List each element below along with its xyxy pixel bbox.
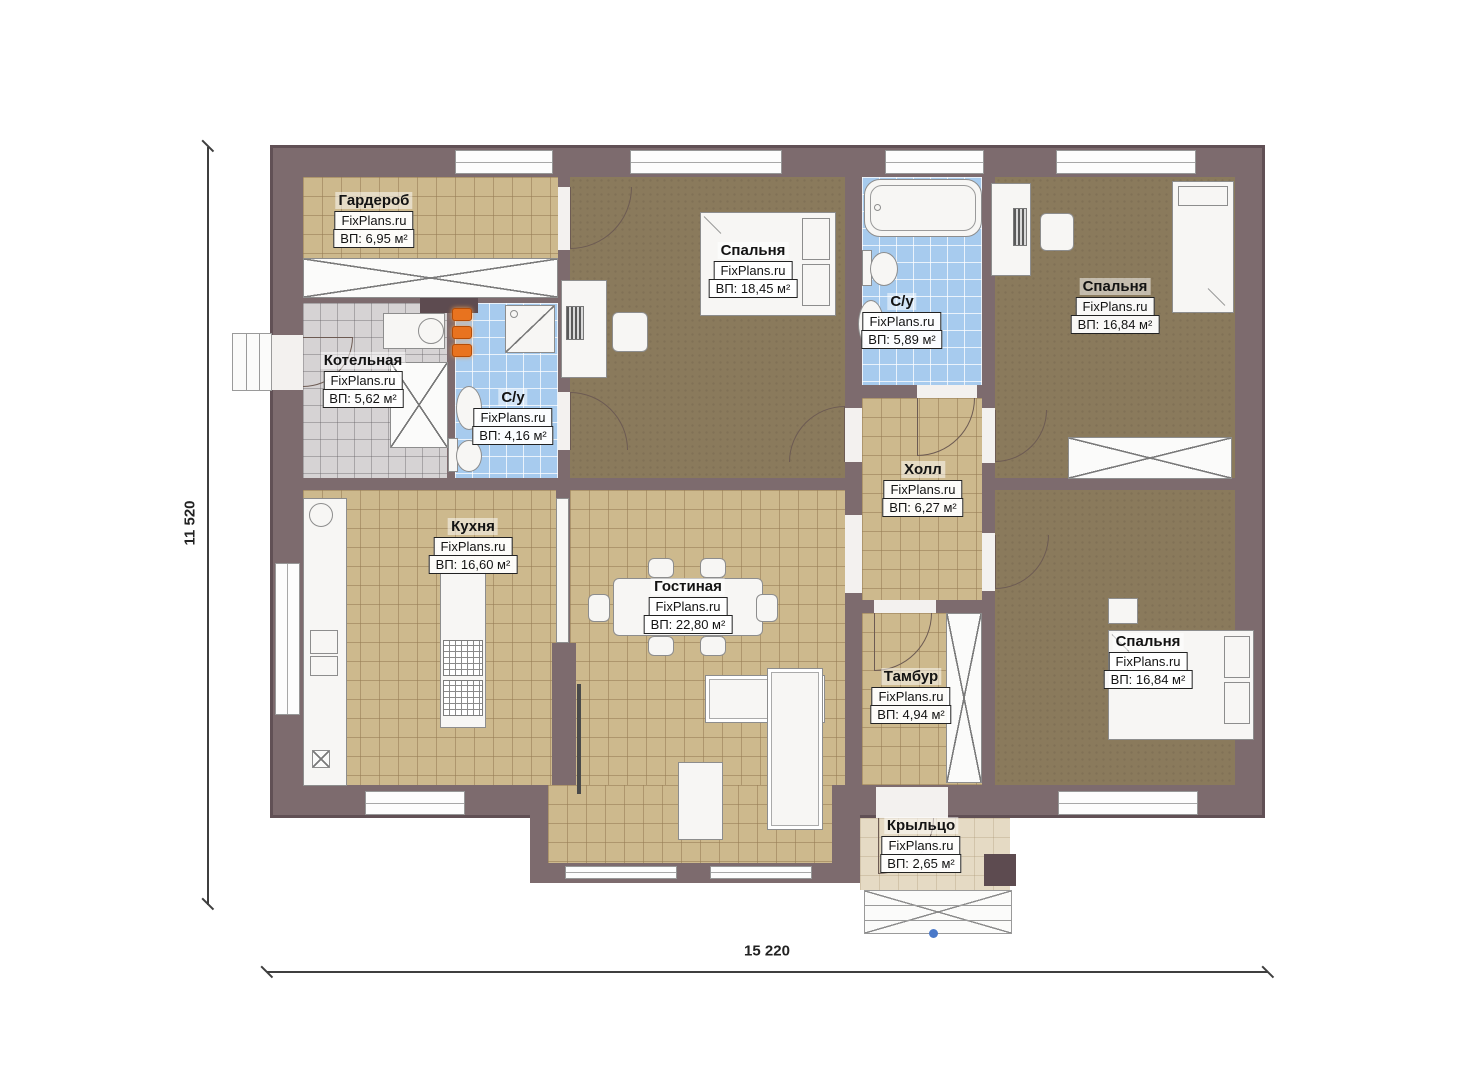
boiler-burner-icon [452,344,472,357]
door-gap-wardrobe [558,187,570,250]
label-brand: FixPlans.ru [862,312,941,331]
room-label-porch: Крыльцо FixPlans.ru ВП: 2,65 м² [880,817,961,873]
room-name: Спальня [718,242,789,259]
fridge-icon [312,750,330,768]
label-brand: FixPlans.ru [433,537,512,556]
boiler-burner-icon [452,308,472,321]
label-brand: FixPlans.ru [473,408,552,427]
door-gap-bedroom-2 [982,408,995,463]
door-gap-bath-main [917,385,977,398]
label-brand: FixPlans.ru [881,836,960,855]
kitchen-sink-icon [310,630,338,654]
room-label-bedroom-2: Спальня FixPlans.ru ВП: 16,84 м² [1071,278,1160,334]
dining-chair-icon [648,558,674,578]
counter-light-icon [309,503,333,527]
boiler-burner-icon [452,326,472,339]
pillow-icon [802,218,830,260]
label-brand: FixPlans.ru [713,261,792,280]
dining-chair-icon [700,558,726,578]
bathtub-inner-icon [870,185,976,231]
room-name: С/у [498,389,527,406]
room-label-bath-small: С/у FixPlans.ru ВП: 4,16 м² [472,389,553,445]
label-brand: FixPlans.ru [883,480,962,499]
toilet-icon [870,252,898,286]
window [1056,150,1196,174]
pillow-icon [1224,636,1250,678]
chair-icon [612,312,648,352]
kitchen-sink-icon [310,656,338,676]
coffee-table-icon [678,762,723,840]
door-gap-vestibule [874,600,936,613]
label-brand: FixPlans.ru [1075,297,1154,316]
room-label-hall: Холл FixPlans.ru ВП: 6,27 м² [882,461,963,517]
window [275,563,300,715]
porch-steps [864,890,1012,934]
label-area: ВП: 2,65 м² [880,854,961,873]
door-gap-bath-small [558,392,570,450]
room-label-bedroom-1: Спальня FixPlans.ru ВП: 18,45 м² [709,242,798,298]
label-area: ВП: 5,62 м² [322,389,403,408]
pillow-icon [802,264,830,306]
label-brand: FixPlans.ru [871,687,950,706]
room-label-wardrobe: Гардероб FixPlans.ru ВП: 6,95 м² [333,192,414,248]
kitchen-living-partition [552,643,576,785]
dimension-line-horizontal [267,971,1268,973]
floor-plan-canvas: Гардероб FixPlans.ru ВП: 6,95 м² Котельн… [0,0,1474,1080]
label-brand: FixPlans.ru [648,597,727,616]
door-gap-bedroom-3 [982,533,995,591]
label-brand: FixPlans.ru [323,371,402,390]
label-area: ВП: 22,80 м² [644,615,733,634]
opening-living-hall [845,515,862,593]
dimension-height-label: 11 520 [182,500,199,545]
dimension-line-vertical [207,147,209,905]
window [565,866,677,879]
label-brand: FixPlans.ru [334,211,413,230]
laptop-icon [566,306,584,340]
room-name: Тамбур [881,668,941,685]
door-gap-bedroom-1 [845,408,862,462]
label-brand: FixPlans.ru [1108,652,1187,671]
porch-column [984,854,1016,886]
window [365,791,465,815]
room-name: Спальня [1113,633,1184,650]
room-label-kitchen: Кухня FixPlans.ru ВП: 16,60 м² [429,518,518,574]
dining-chair-icon [648,636,674,656]
wardrobe-closet-icon [1068,437,1232,479]
door-gap-boiler-entry [272,335,303,390]
monitor-icon [1013,208,1027,246]
room-name: Котельная [321,352,406,369]
label-area: ВП: 6,27 м² [882,498,963,517]
window [630,150,782,174]
window [885,150,984,174]
label-area: ВП: 5,89 м² [861,330,942,349]
room-label-living: Гостиная FixPlans.ru ВП: 22,80 м² [644,578,733,634]
window [1058,791,1198,815]
window [710,866,812,879]
room-name: С/у [887,293,916,310]
shower-head-icon [510,310,518,318]
label-area: ВП: 16,84 м² [1104,670,1193,689]
label-area: ВП: 4,16 м² [472,426,553,445]
room-name: Холл [901,461,945,478]
label-area: ВП: 18,45 м² [709,279,798,298]
entry-steps-side [232,333,272,391]
room-label-bath-main: С/у FixPlans.ru ВП: 5,89 м² [861,293,942,349]
dining-chair-icon [588,594,610,622]
pillow-icon [1178,186,1228,206]
room-name: Крыльцо [884,817,958,834]
porch-marker-dot [929,929,938,938]
bath-faucet-icon [874,204,881,211]
stove-grate-icon [443,680,483,716]
room-label-boiler: Котельная FixPlans.ru ВП: 5,62 м² [321,352,406,408]
tv-icon [577,684,581,794]
washer-drum-icon [418,318,444,344]
room-label-vestibule: Тамбур FixPlans.ru ВП: 4,94 м² [870,668,951,724]
room-name: Спальня [1080,278,1151,295]
room-name: Кухня [448,518,498,535]
tall-cabinet [556,498,569,643]
dimension-width-label: 15 220 [744,943,790,960]
dining-chair-icon [756,594,778,622]
label-area: ВП: 6,95 м² [333,229,414,248]
label-area: ВП: 16,84 м² [1071,315,1160,334]
label-area: ВП: 4,94 м² [870,705,951,724]
room-name: Гардероб [336,192,413,209]
pillow-icon [1224,682,1250,724]
room-name: Гостиная [651,578,725,595]
wardrobe-closet-icon [303,258,558,298]
chair-icon [1040,213,1074,251]
stove-grate-icon [443,640,483,676]
sofa-icon [767,668,823,830]
nightstand-icon [1108,598,1138,624]
window [455,150,553,174]
label-area: ВП: 16,60 м² [429,555,518,574]
dining-chair-icon [700,636,726,656]
door-gap-main-entry [876,787,948,818]
room-label-bedroom-3: Спальня FixPlans.ru ВП: 16,84 м² [1104,633,1193,689]
